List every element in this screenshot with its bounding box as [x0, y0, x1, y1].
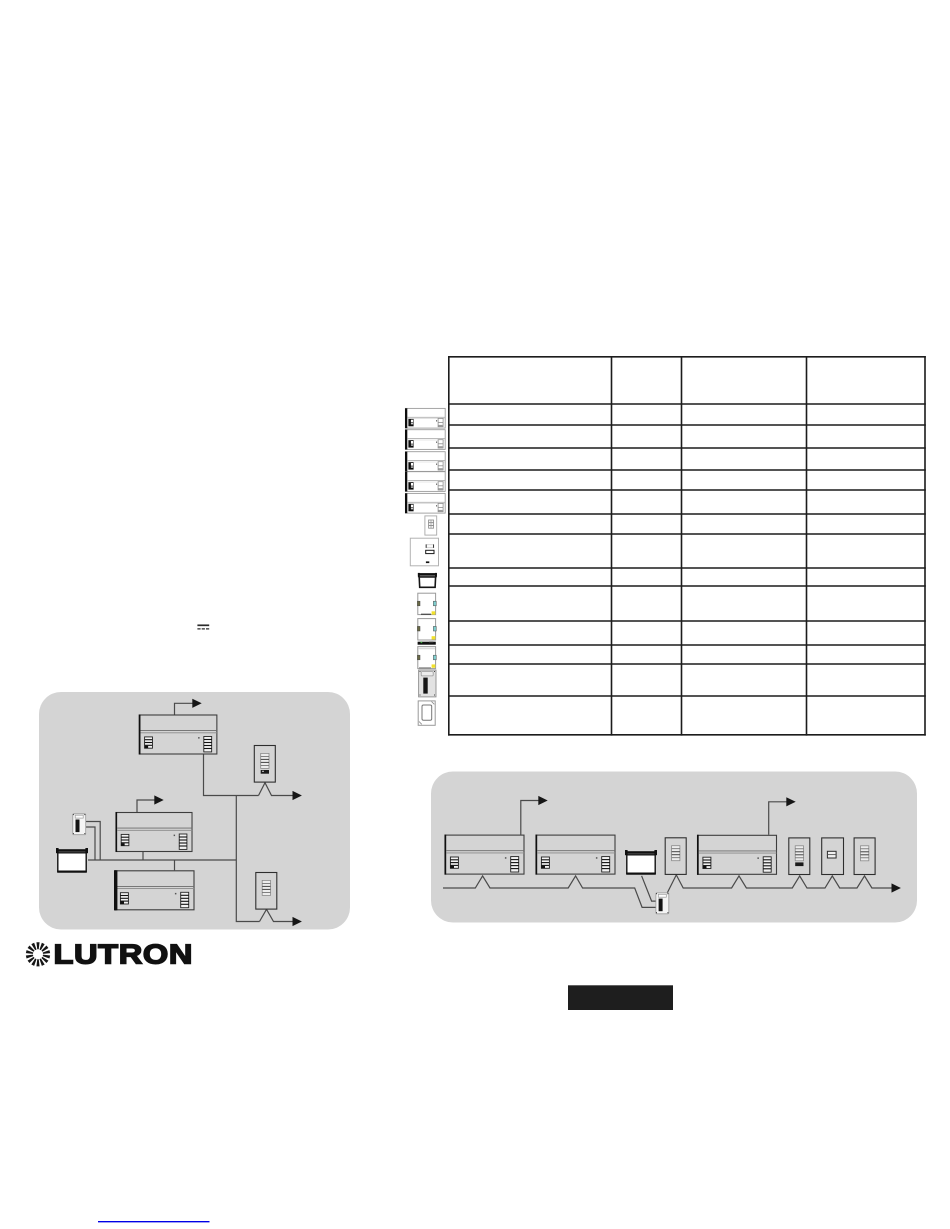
- svg-text:LUTRON: LUTRON: [54, 939, 194, 970]
